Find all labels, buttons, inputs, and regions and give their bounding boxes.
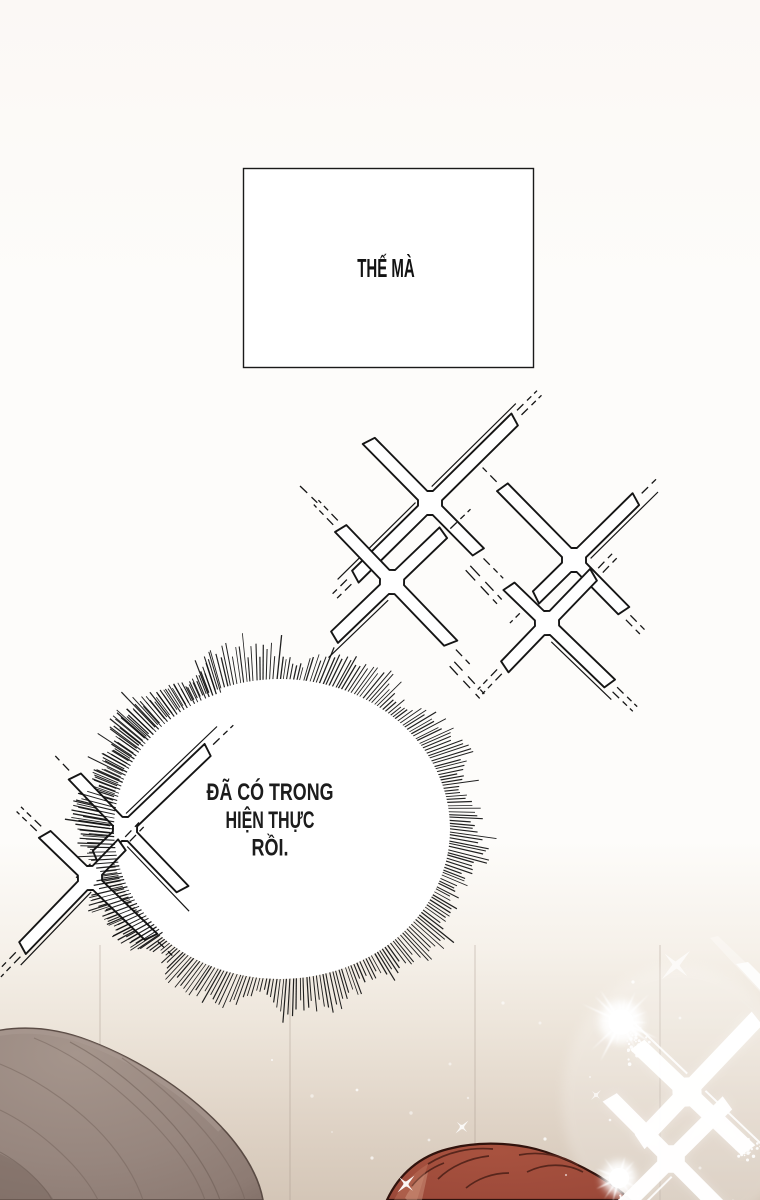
svg-text:THẾ MÀ: THẾ MÀ — [357, 253, 415, 284]
svg-text:ĐÃ CÓ TRONG: ĐÃ CÓ TRONG — [207, 777, 334, 806]
svg-text:RỒI.: RỒI. — [252, 833, 289, 862]
svg-text:HIỆN THỰC: HIỆN THỰC — [226, 806, 315, 834]
